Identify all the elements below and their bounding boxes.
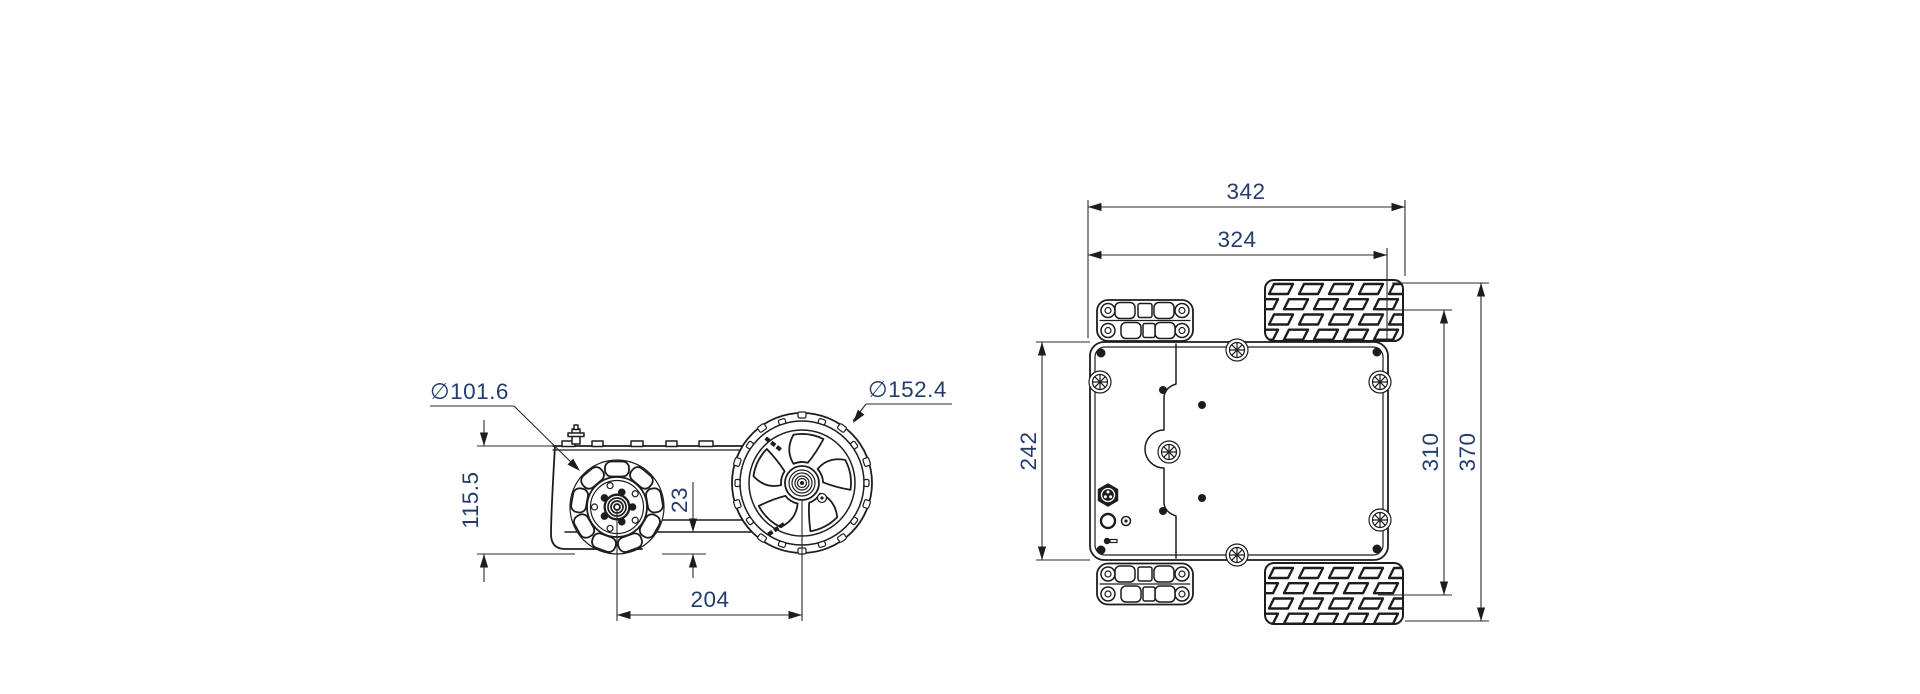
dim-label-width-body: 242 <box>1016 431 1041 470</box>
dim-label-width-overall: 370 <box>1455 432 1480 471</box>
power-connector-hex <box>1099 484 1118 506</box>
dim-label-length-body: 324 <box>1217 227 1256 252</box>
indicator-dot <box>1122 517 1131 526</box>
dim-label-body-height: 115.5 <box>458 471 483 528</box>
side-view: ∅101.6 ∅152.4 115.5 23 <box>430 377 952 621</box>
dim-width-inner: 310 <box>1378 310 1452 595</box>
dim-label-wheelbase: 204 <box>690 587 729 612</box>
top-tire-rear-right <box>1265 563 1403 624</box>
dim-label-length-overall: 342 <box>1226 179 1265 204</box>
dim-width-body: 242 <box>1016 342 1090 560</box>
dim-diameter-mecanum: ∅101.6 <box>430 379 583 474</box>
drawing-canvas: ∅101.6 ∅152.4 115.5 23 <box>0 0 1920 694</box>
top-view: 342 324 242 310 <box>1016 179 1489 624</box>
dim-diameter-tire: ∅152.4 <box>850 377 952 425</box>
dim-label-ground-clearance: 23 <box>667 487 692 513</box>
dim-label-width-inner: 310 <box>1418 432 1443 471</box>
dim-label-mecanum-diameter: ∅101.6 <box>430 379 509 404</box>
top-mecanum-wheel-front-left <box>1097 300 1193 341</box>
dim-ground-clearance: 23 <box>667 482 697 578</box>
top-body-plate <box>1089 339 1391 566</box>
top-mecanum-wheel-rear-left <box>1097 564 1193 605</box>
dim-label-tire-diameter: ∅152.4 <box>868 377 947 402</box>
engineering-drawing: ∅101.6 ∅152.4 115.5 23 <box>0 0 1920 694</box>
